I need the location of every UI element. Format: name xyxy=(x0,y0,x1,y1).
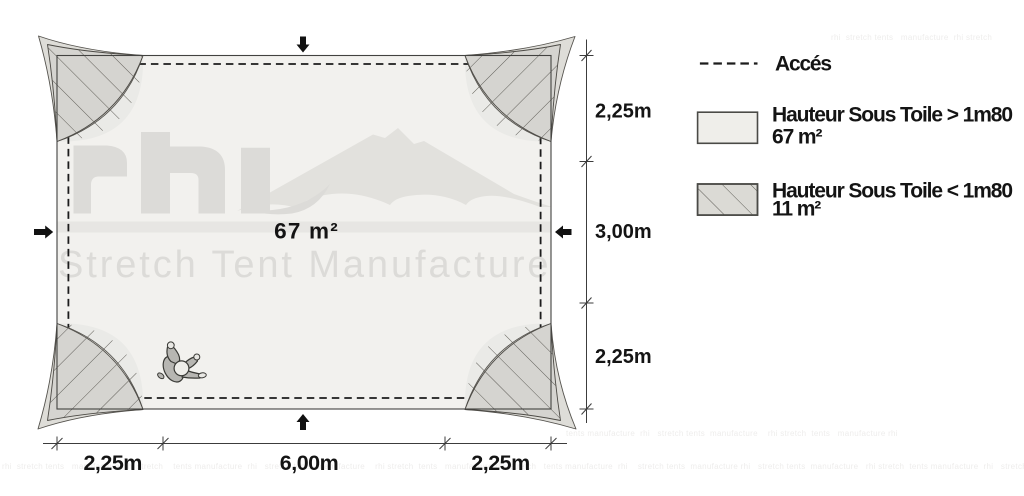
svg-text:2,25m: 2,25m xyxy=(595,101,652,123)
svg-text:3,00m: 3,00m xyxy=(595,221,652,243)
svg-text:Stretch Tent Manufacture: Stretch Tent Manufacture xyxy=(58,244,551,286)
svg-text:rhi stretch tents manufactu: rhi stretch tents manufacture rhi stretc… xyxy=(831,33,992,42)
svg-text:2,25m: 2,25m xyxy=(83,451,141,475)
svg-text:Hauteur Sous Toile > 1m80: Hauteur Sous Toile > 1m80 xyxy=(772,104,1012,127)
svg-text:2,25m: 2,25m xyxy=(471,451,529,475)
svg-text:6,00m: 6,00m xyxy=(280,451,338,475)
svg-text:67 m²: 67 m² xyxy=(274,219,339,244)
svg-text:11 m²: 11 m² xyxy=(772,198,821,221)
svg-text:67 m²: 67 m² xyxy=(772,126,822,149)
svg-text:2,25m: 2,25m xyxy=(595,346,652,368)
svg-text:tents manufacture rhi stret: tents manufacture rhi stretch tents manu… xyxy=(566,429,898,438)
svg-text:Accés: Accés xyxy=(775,53,831,76)
